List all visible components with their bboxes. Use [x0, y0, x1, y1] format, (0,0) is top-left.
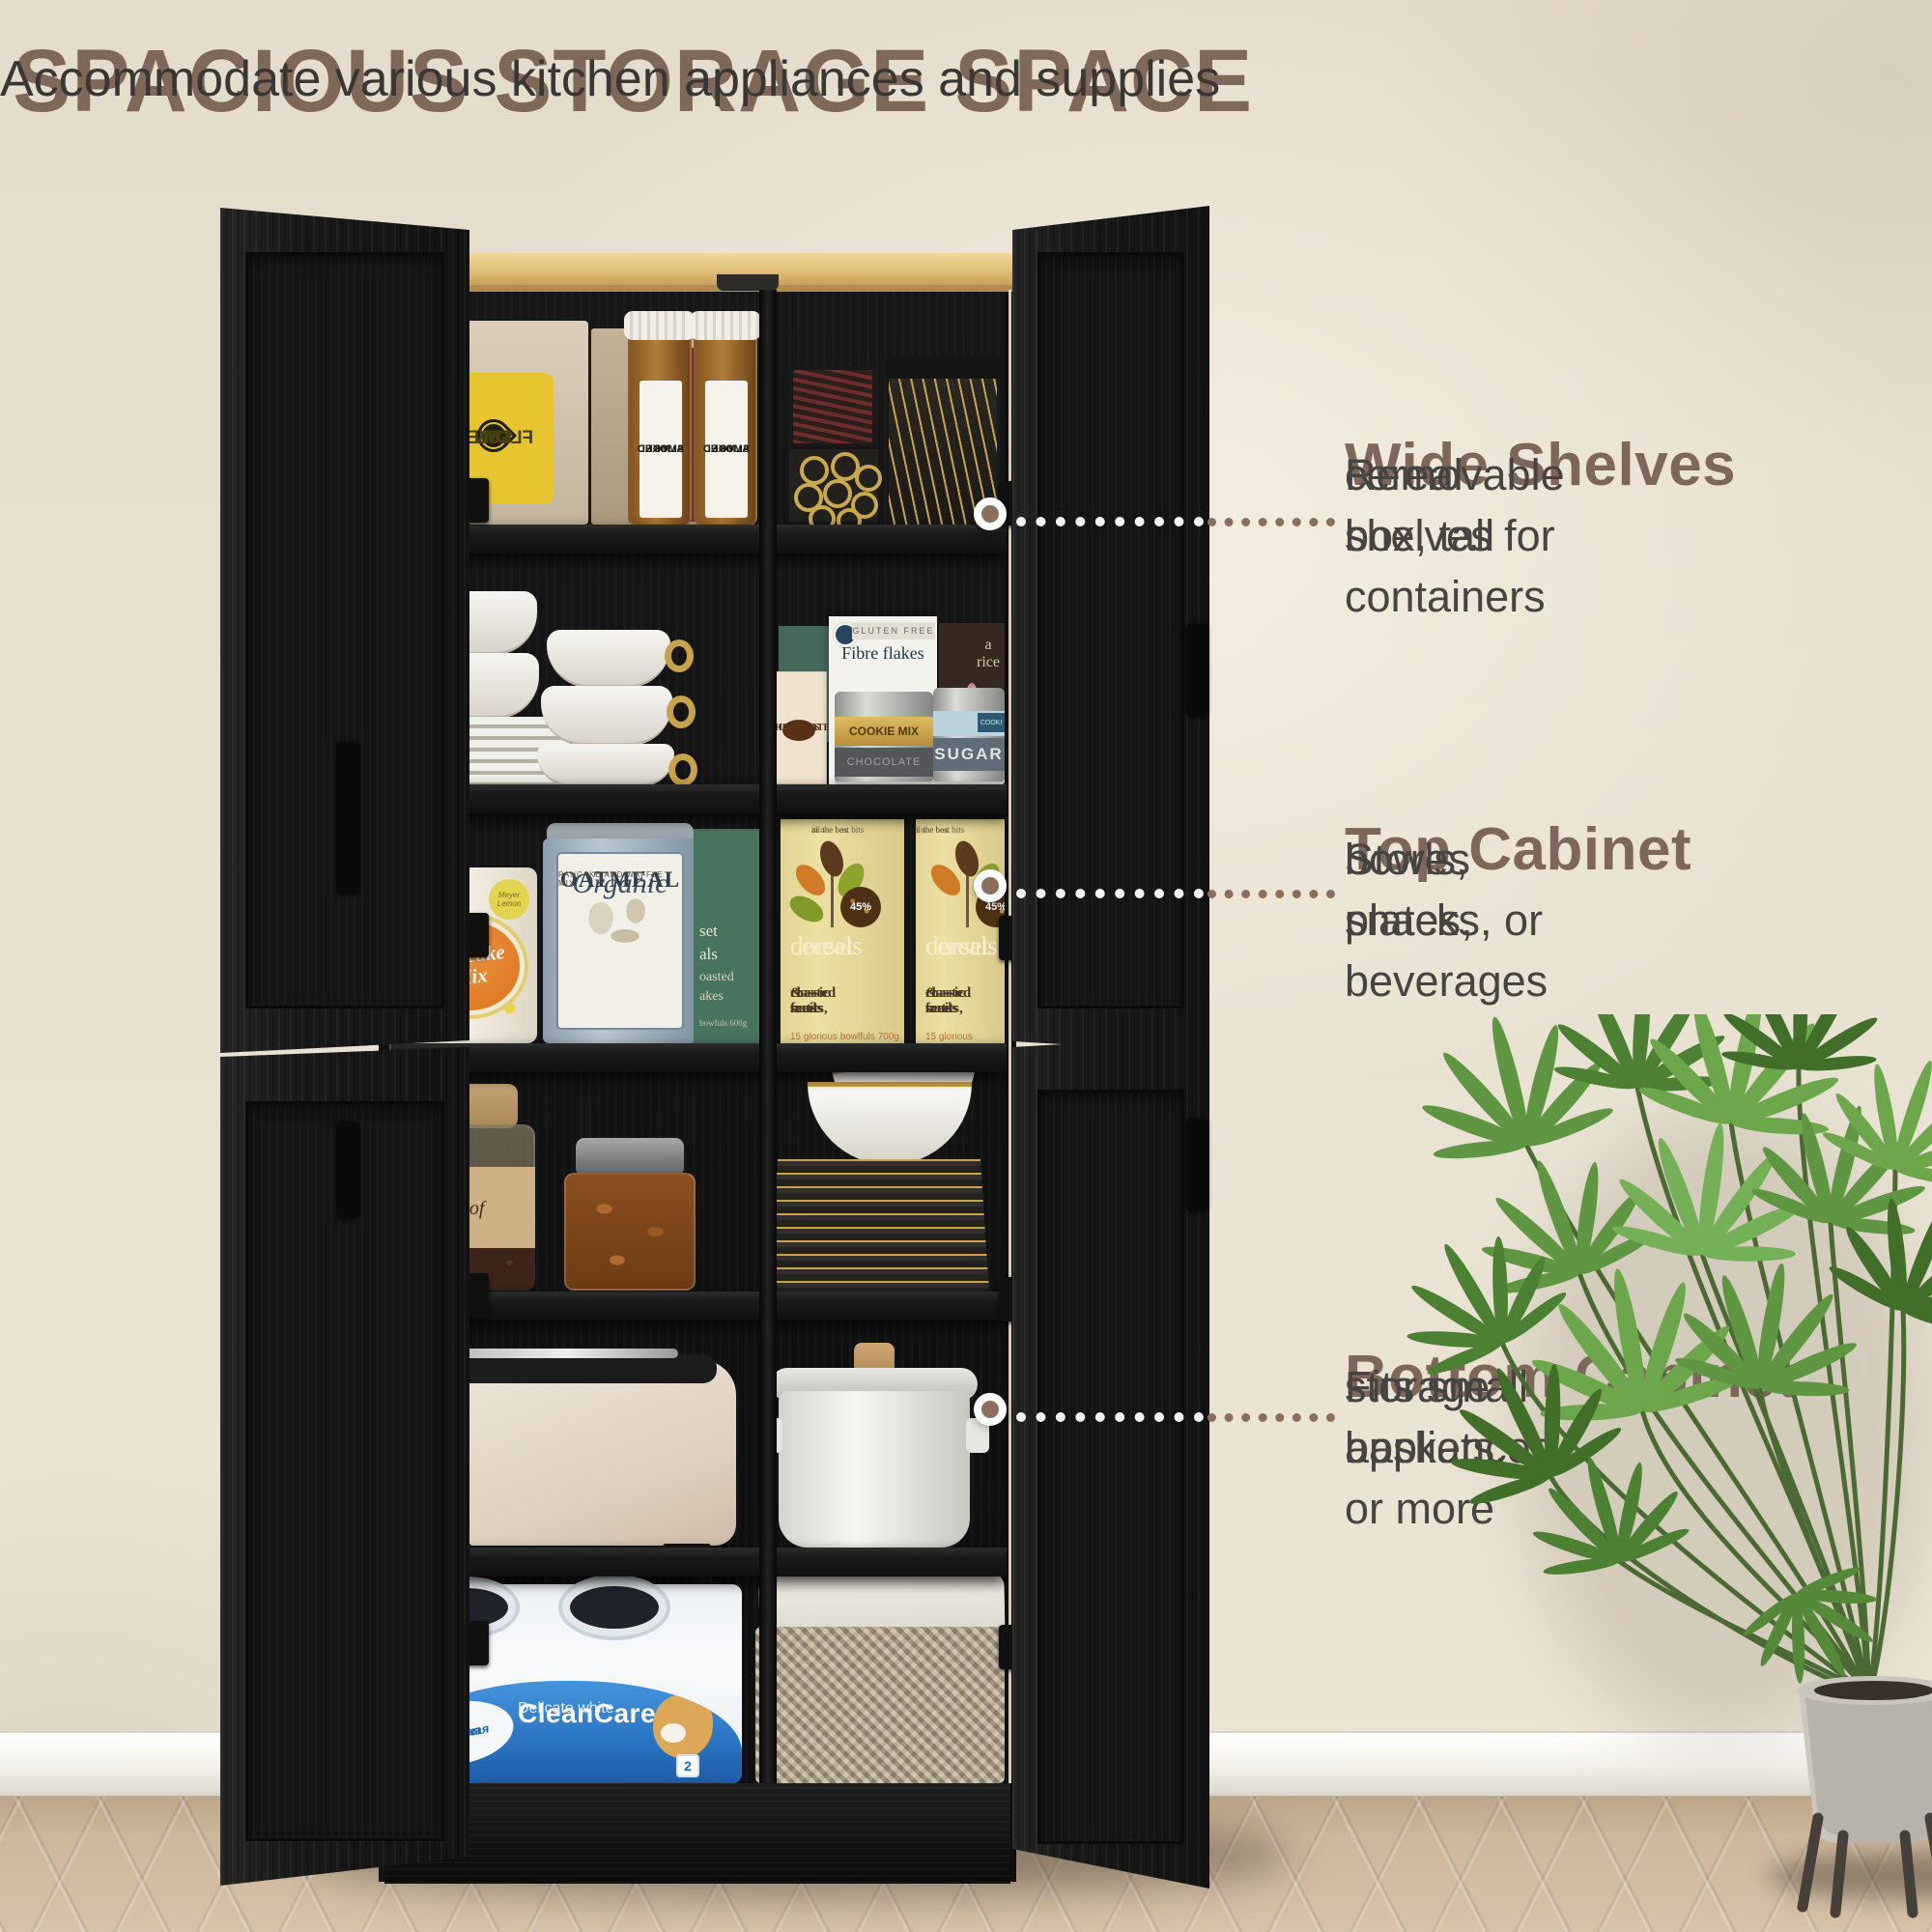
potted-plant	[1381, 1014, 1932, 1932]
right-lower-door	[1012, 1036, 1209, 1889]
fibre-flakes-name: Fibre flakes	[829, 643, 937, 664]
coffee-cup	[547, 630, 670, 688]
pasta-rings-container	[786, 446, 881, 525]
leaf-icon	[785, 891, 828, 927]
dotted-connector-brown	[1207, 518, 1335, 526]
clip-jar-lid	[576, 1138, 684, 1177]
count-badge: 2	[676, 1754, 699, 1777]
plant-pot	[1797, 1676, 1932, 1913]
pasta-container	[790, 367, 875, 446]
dorset-cereals-box: all the best bitsin one box 45% dorsetce…	[916, 819, 1005, 1043]
jar-lid	[690, 311, 761, 340]
right-upper-door	[1012, 198, 1209, 1053]
dotted-connector-brown	[1207, 890, 1335, 898]
dorset-cereals-box: all the best bitsin one box 45% dorsetce…	[781, 819, 904, 1043]
stock-pot	[779, 1391, 970, 1548]
page-subtitle: Accommodate various kitchen appliances a…	[0, 50, 1220, 108]
chocolate-chunks-box: MILK CHOCOLATE CHUNKS	[771, 671, 827, 784]
shelf-board	[388, 784, 1007, 813]
cookie-illustration	[782, 720, 815, 741]
cleancare-subtitle: Delicate white	[518, 1700, 614, 1718]
shelf-board	[388, 1043, 1007, 1072]
door-handle	[336, 742, 359, 895]
sugar-tin: COOKI SUGAR	[933, 688, 1005, 784]
cookie-mix-label: COOKIE MIX	[835, 717, 933, 746]
oatmeal-sketch-illustration	[572, 875, 668, 947]
pretzel-jar	[564, 1173, 696, 1291]
cookies-tin-tab: COOKI	[978, 713, 1005, 732]
dotted-connector-white	[1016, 1412, 1204, 1422]
smoked-almond-label: SMOKED ALMOND 03	[705, 381, 748, 518]
gluten-free-strip: GLUTEN FREE	[852, 622, 935, 639]
door-panel	[1037, 1090, 1184, 1844]
dotted-connector-white	[1016, 517, 1204, 526]
callout-anchor-dot	[974, 869, 1007, 902]
pasta-rings-art	[789, 449, 884, 527]
jar-lid	[624, 311, 696, 340]
muesli-badge: 45%	[840, 887, 881, 927]
toaster-chrome-bar	[456, 1349, 678, 1358]
cup-handle	[667, 696, 696, 728]
plate-stack	[769, 1159, 989, 1292]
left-upper-door	[220, 198, 469, 1053]
coffee-cup	[541, 686, 672, 746]
door-handle	[336, 1122, 359, 1219]
puppy-illustration	[653, 1694, 713, 1758]
oatmeal-label: Organic OATMEAL PANCAKE AND WAFFLE MIX	[556, 852, 684, 1030]
oatmeal-can: Organic OATMEAL PANCAKE AND WAFFLE MIX	[543, 838, 697, 1043]
door-handle	[1186, 1119, 1207, 1211]
cup-handle	[668, 753, 697, 786]
cabinet-top-notch	[717, 274, 779, 291]
door-panel	[245, 252, 444, 1009]
smoked-almond-label: SMOKED ALMOND 03	[639, 381, 682, 518]
cup-handle	[665, 639, 694, 672]
cabinet-base	[384, 1783, 1010, 1884]
paper-roll-top	[570, 1586, 659, 1629]
cabinet-wood-top	[379, 253, 1016, 292]
callout-anchor-dot	[974, 1393, 1007, 1426]
cookie-mix-tin: COOKIE MIX CHOCOLATE	[835, 692, 933, 784]
dotted-connector-white	[1016, 889, 1204, 898]
meyer-lemon-badge: Meyer Lemon	[489, 879, 529, 920]
center-divider	[759, 290, 777, 1783]
shelf-board	[388, 1548, 1007, 1577]
sugar-label: SUGAR	[933, 738, 1005, 771]
callout-anchor-dot	[974, 497, 1007, 530]
coffee-cup	[537, 744, 674, 786]
smoked-almond-jar: SMOKED ALMOND 03	[628, 319, 692, 526]
smoked-almond-jar: SMOKED ALMOND 03	[694, 319, 757, 526]
chocolate-band: CHOCOLATE	[835, 748, 933, 777]
spaghetti-container-lid	[885, 355, 1001, 381]
door-handle	[1186, 624, 1207, 717]
dorset-green-box: set als oasted akes bowfuls 600g	[694, 829, 767, 1043]
dotted-connector-brown	[1207, 1413, 1335, 1422]
woven-storage-basket	[755, 1627, 1005, 1783]
shelf-board	[388, 525, 1007, 554]
product-infographic: SPACIOUS STORAGE SPACE Accommodate vario…	[0, 0, 1932, 1932]
